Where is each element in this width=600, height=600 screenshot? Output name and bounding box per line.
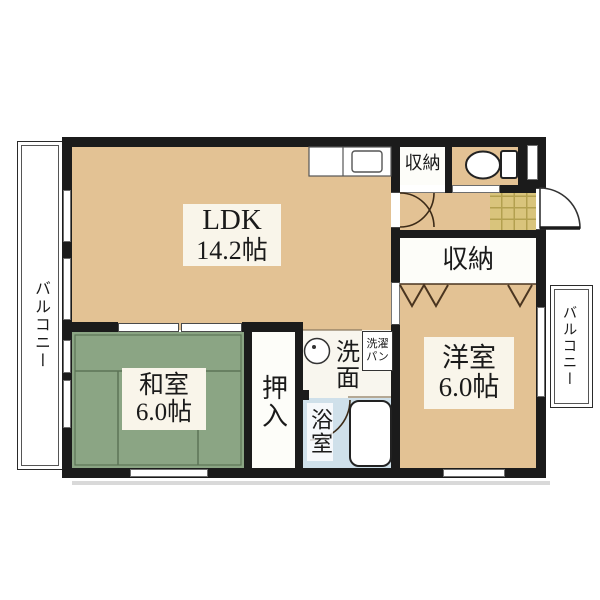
toilet-door (452, 185, 500, 193)
wall-hall-storage (391, 230, 536, 238)
ldk-hallway-door-opening (391, 192, 400, 228)
storage-hall-label: 収納 (400, 244, 536, 276)
plan-shadow (72, 481, 550, 485)
western-room-balcony-window (537, 307, 545, 397)
ldk-balcony-window-1 (63, 190, 71, 242)
storage-upper-opening (400, 185, 445, 193)
western-room-south-window (443, 469, 505, 477)
wall-storage-toilet (445, 143, 452, 190)
laundry-pan-label-line1: 洗濯 (367, 338, 389, 351)
western-room-label: 洋室 6.0帖 (424, 337, 514, 409)
japanese-room-size: 6.0帖 (136, 399, 192, 426)
western-room-door-opening (391, 282, 400, 325)
washitsu-sliding-door-1 (118, 323, 179, 332)
entrance-tile-floor (490, 188, 536, 230)
storage-upper-label: 収納 (400, 152, 445, 176)
washitsu-south-window (130, 469, 208, 477)
closet-label: 押入 (257, 358, 289, 446)
japanese-room-label: 和室 6.0帖 (122, 368, 206, 430)
entrance-door-icon (540, 188, 580, 228)
wall-bath-stub (295, 390, 309, 400)
laundry-pan-label-line2: パン (366, 351, 389, 364)
wall-ldk-washitsu-east (242, 322, 303, 332)
ldk-name: LDK (202, 205, 262, 236)
western-room-name: 洋室 (442, 344, 496, 373)
toilet-floor (452, 143, 518, 188)
washitsu-balcony-window-2 (63, 380, 71, 428)
wall-top (62, 137, 546, 147)
washitsu-balcony-window-1 (63, 340, 71, 373)
balcony-right-label: バルコニー (556, 287, 582, 405)
ldk-size: 14.2帖 (196, 237, 268, 265)
wall-washitsu-closet (244, 332, 252, 468)
japanese-room-name: 和室 (139, 372, 189, 399)
wall-ldk-washitsu-west (72, 322, 118, 332)
balcony-left-label: バルコニー (26, 252, 54, 397)
ldk-label: LDK 14.2帖 (183, 204, 281, 266)
entrance-opening (536, 188, 546, 230)
western-room-size: 6.0帖 (439, 373, 500, 402)
washitsu-sliding-door-2 (181, 323, 242, 332)
laundry-pan: 洗濯 パン (362, 331, 393, 371)
washroom-label: 洗面 (331, 334, 359, 396)
toilet-window (527, 145, 538, 180)
ldk-balcony-window-2 (63, 258, 71, 320)
floor-plan: バルコニー バルコニー 洗濯 パン (0, 0, 600, 600)
bathroom-label: 浴室 (307, 403, 333, 461)
